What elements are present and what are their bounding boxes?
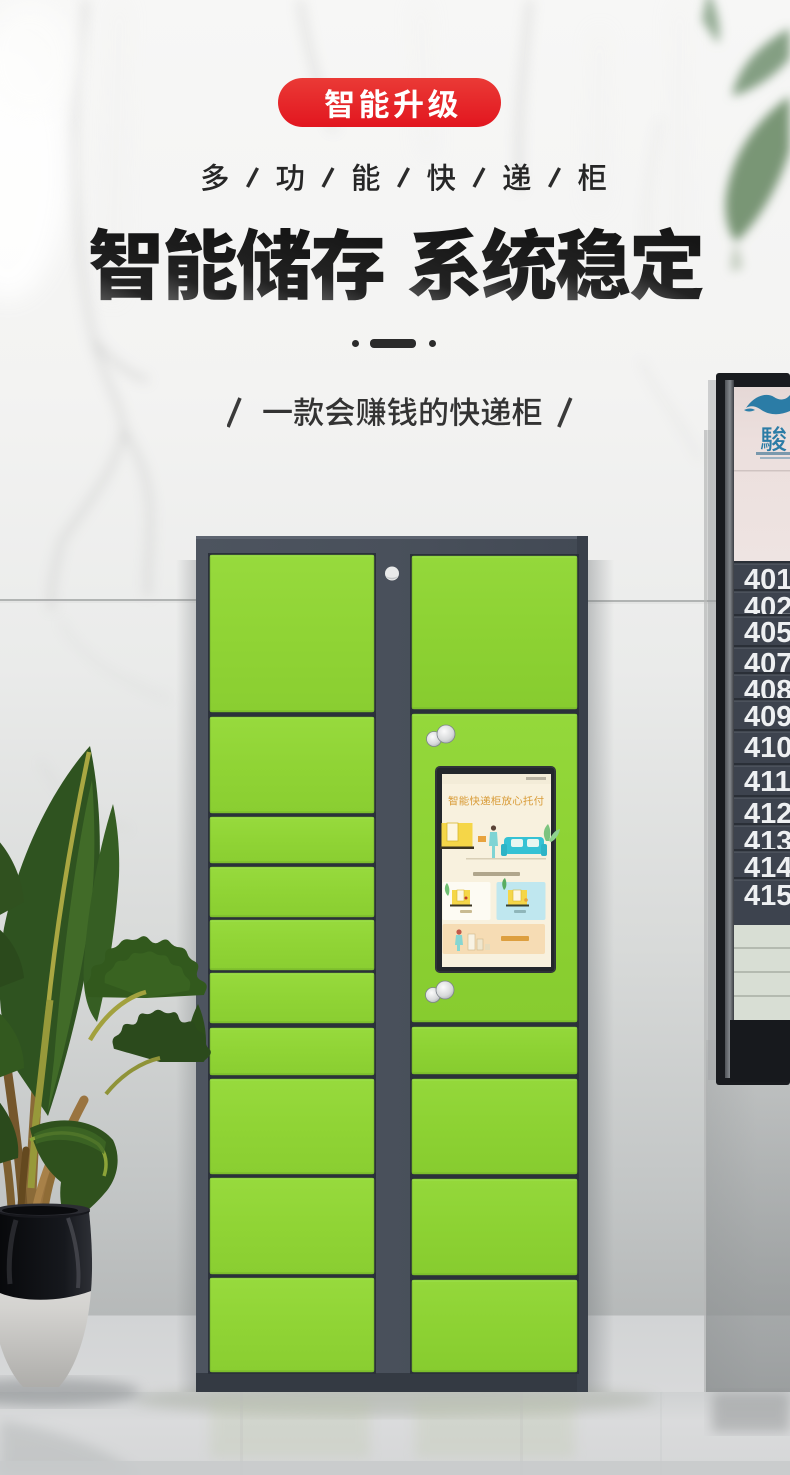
svg-text:410: 410	[744, 732, 790, 764]
svg-text:411: 411	[744, 766, 790, 798]
svg-text:405: 405	[744, 617, 790, 649]
svg-text:409: 409	[744, 701, 790, 733]
svg-text:415: 415	[744, 880, 790, 912]
